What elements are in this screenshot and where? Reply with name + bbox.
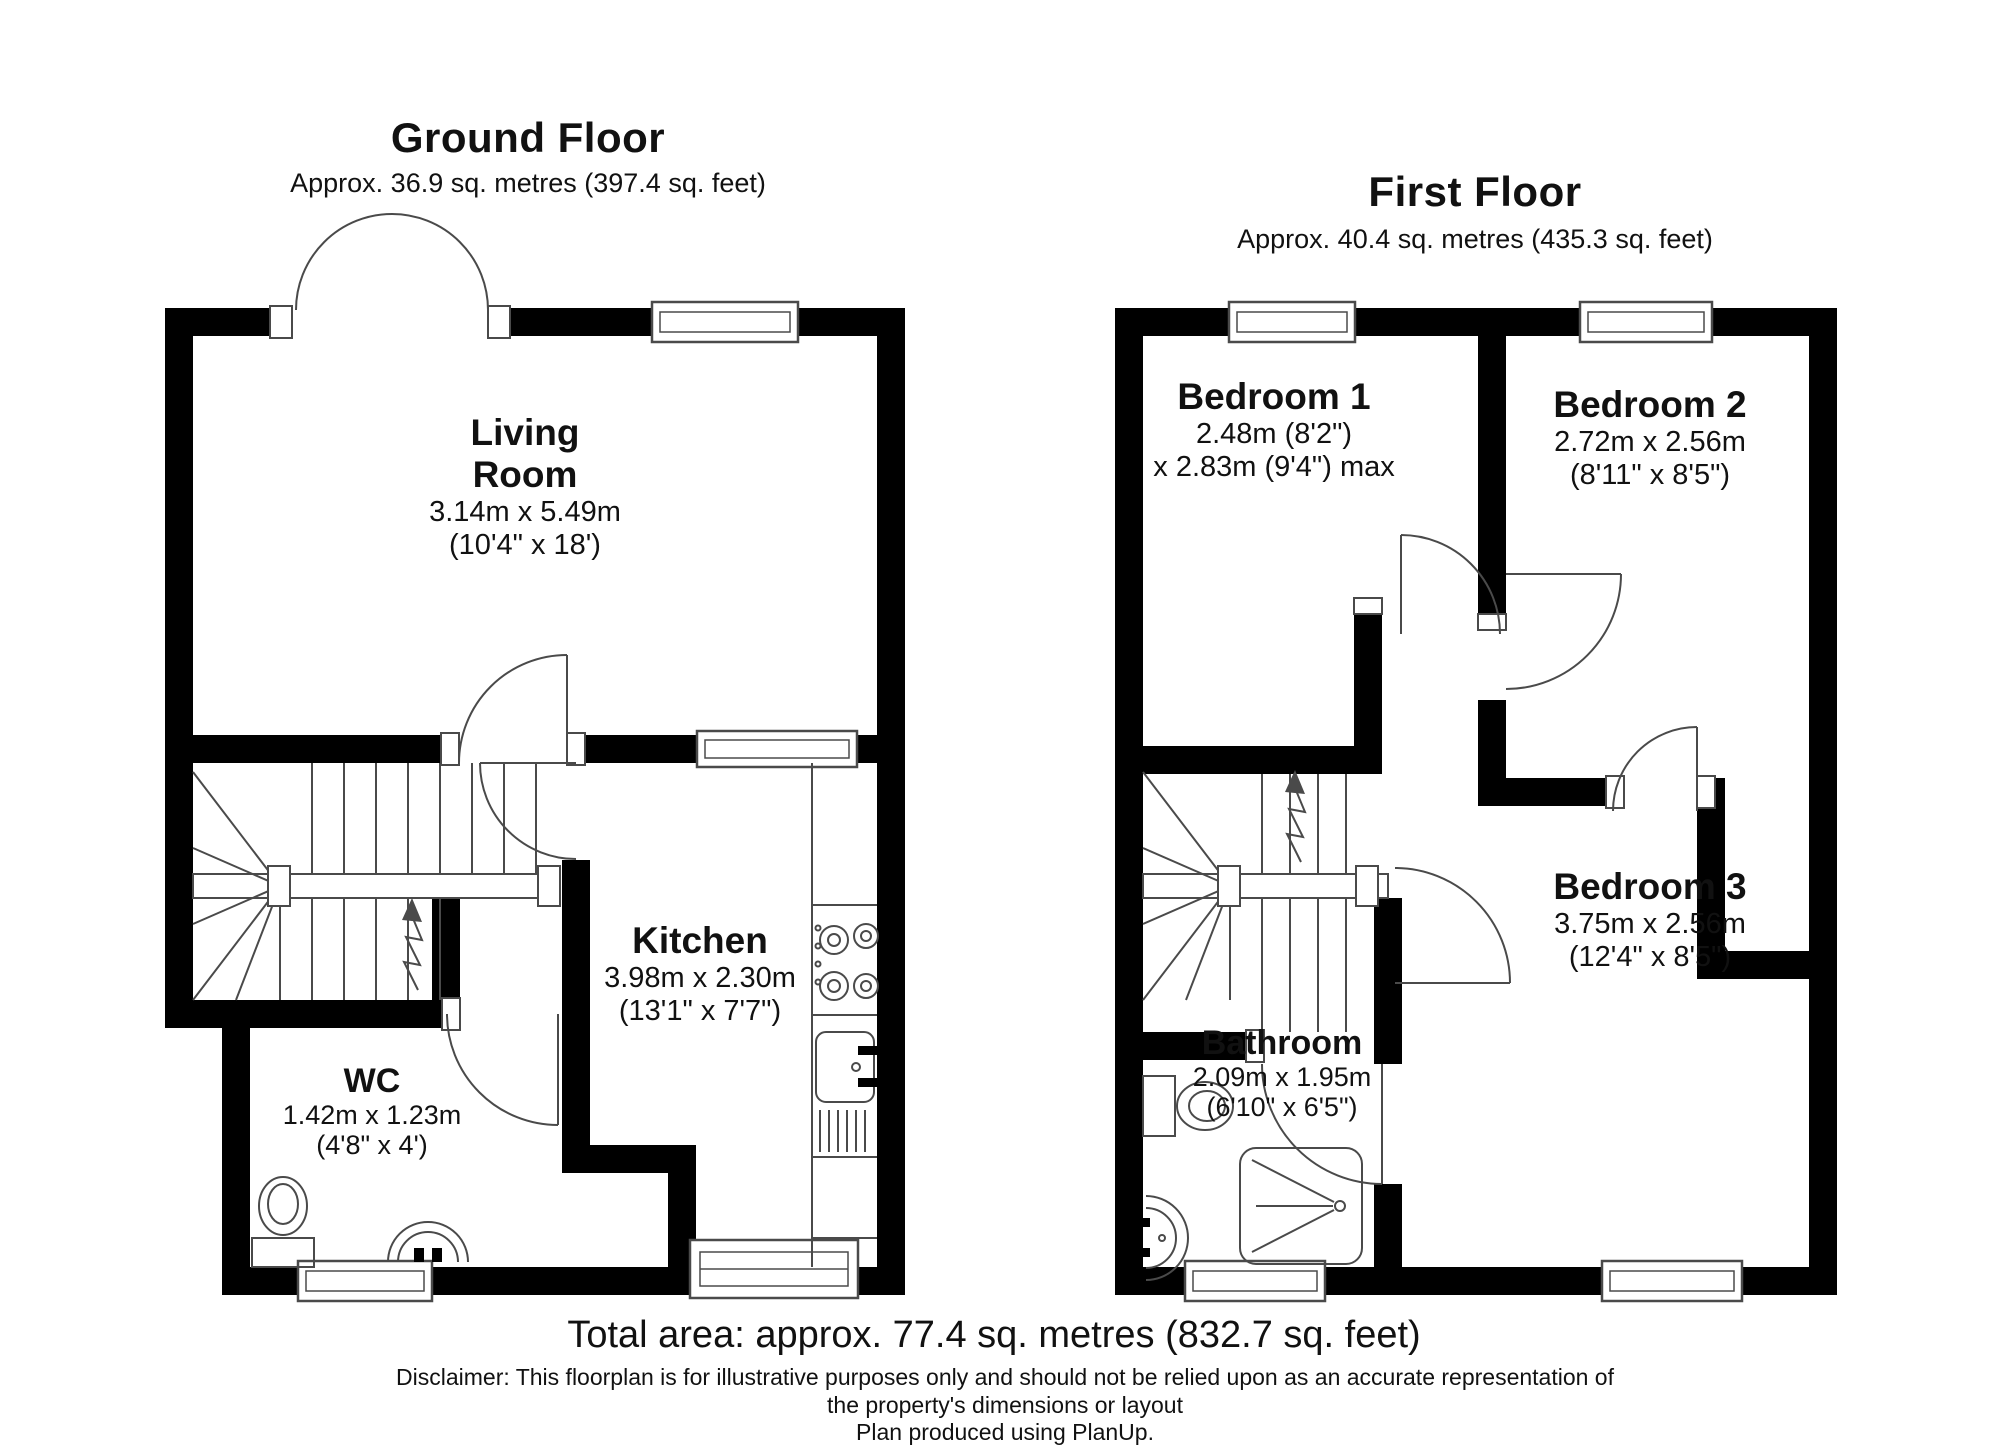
first-floor-title: First Floor (1368, 168, 1581, 216)
living-room-label: Living Room 3.14m x 5.49m (10'4" x 18') (429, 412, 621, 562)
hob-symbol (816, 924, 879, 1000)
gf-kitchen-fixtures (812, 763, 878, 1267)
ff-stairs-direction-arrow (1285, 770, 1305, 862)
room-name: Bathroom (1193, 1024, 1372, 1062)
wc-label: WC 1.42m x 1.23m (4'8" x 4') (283, 1062, 462, 1160)
gf-french-door-right-arc (392, 214, 488, 310)
gf-wc-fixtures (252, 1177, 468, 1267)
gf-kitchen-window (690, 1240, 858, 1298)
floorplan-page: Ground Floor Approx. 36.9 sq. metres (39… (0, 0, 2000, 1454)
room-name: Bedroom 3 (1553, 866, 1746, 908)
room-dims-metric: 3.98m x 2.30m (604, 962, 796, 995)
disclaimer-line-2: the property's dimensions or layout (396, 1392, 1614, 1420)
ff-bedroom2-door (1613, 727, 1697, 811)
total-area-text: Total area: approx. 77.4 sq. metres (832… (567, 1314, 1420, 1357)
bedroom3-label: Bedroom 3 3.75m x 2.56m (12'4" x 8'5") (1553, 866, 1746, 974)
drainer-symbol (820, 1110, 865, 1152)
room-dims-metric: 3.14m x 5.49m (429, 496, 621, 529)
room-dims-imperial: (4'8" x 4') (283, 1130, 462, 1160)
disclaimer: Disclaimer: This floorplan is for illust… (396, 1364, 1614, 1447)
disclaimer-line-3: Plan produced using PlanUp. (396, 1419, 1614, 1447)
shower-symbol (1240, 1148, 1362, 1264)
room-name: Bedroom 1 (1153, 376, 1394, 418)
gf-living-window (652, 302, 798, 342)
gf-hall-living-door (459, 655, 567, 763)
ff-bathroom-window (1185, 1261, 1325, 1301)
basin-symbol (388, 1222, 468, 1262)
gf-wc-door (447, 1014, 558, 1125)
first-floor-subtitle: Approx. 40.4 sq. metres (435.3 sq. feet) (1237, 224, 1713, 255)
room-dims-metric: 2.09m x 1.95m (1193, 1062, 1372, 1092)
gf-stairs-direction-arrow (402, 898, 422, 990)
room-dims-imperial: (13'1" x 7'7") (604, 995, 796, 1028)
room-name: WC (283, 1062, 462, 1100)
gf-internal-window (697, 731, 857, 767)
ground-floor-title: Ground Floor (391, 114, 665, 162)
sink-symbol (816, 1032, 878, 1102)
room-dims-metric: 3.75m x 2.56m (1553, 908, 1746, 941)
room-dims-metric: 1.42m x 1.23m (283, 1100, 462, 1130)
ff-door-jambs (1246, 598, 1715, 1062)
ground-floor-plan (165, 214, 905, 1301)
gf-french-door-left-arc (296, 214, 392, 310)
kitchen-label: Kitchen 3.98m x 2.30m (13'1" x 7'7") (604, 920, 796, 1028)
room-dims-imperial: (10'4" x 18') (429, 529, 621, 562)
gf-wc-window (298, 1261, 432, 1301)
bedroom1-label: Bedroom 1 2.48m (8'2") x 2.83m (9'4") ma… (1153, 376, 1394, 484)
ff-bedroom1-window (1229, 302, 1355, 342)
room-dims-imperial: x 2.83m (9'4") max (1153, 451, 1394, 484)
ff-bedroom2-window (1580, 302, 1712, 342)
ff-bedroom3-window (1602, 1261, 1742, 1301)
floorplan-linework (0, 0, 2000, 1454)
room-dims-imperial: (6'10" x 6'5") (1193, 1092, 1372, 1122)
bathroom-label: Bathroom 2.09m x 1.95m (6'10" x 6'5") (1193, 1024, 1372, 1122)
ff-landing-door (1506, 574, 1621, 689)
room-name: Bedroom 2 (1553, 384, 1746, 426)
bedroom2-label: Bedroom 2 2.72m x 2.56m (8'11" x 8'5") (1553, 384, 1746, 492)
disclaimer-line-1: Disclaimer: This floorplan is for illust… (396, 1364, 1614, 1392)
room-dims-imperial: (12'4" x 8'5") (1553, 941, 1746, 974)
gf-kitchen-door (480, 763, 576, 859)
room-name: Kitchen (604, 920, 796, 962)
ff-stairs (1143, 770, 1388, 1032)
gf-stairs (193, 763, 560, 1000)
ff-bedroom3-door (1395, 868, 1510, 983)
toilet-symbol (252, 1177, 314, 1267)
room-name: Room (429, 454, 621, 496)
ground-floor-subtitle: Approx. 36.9 sq. metres (397.4 sq. feet) (290, 168, 766, 199)
room-name: Living (429, 412, 621, 454)
room-dims-metric: 2.48m (8'2") (1153, 418, 1394, 451)
room-dims-imperial: (8'11" x 8'5") (1553, 459, 1746, 492)
room-dims-metric: 2.72m x 2.56m (1553, 426, 1746, 459)
